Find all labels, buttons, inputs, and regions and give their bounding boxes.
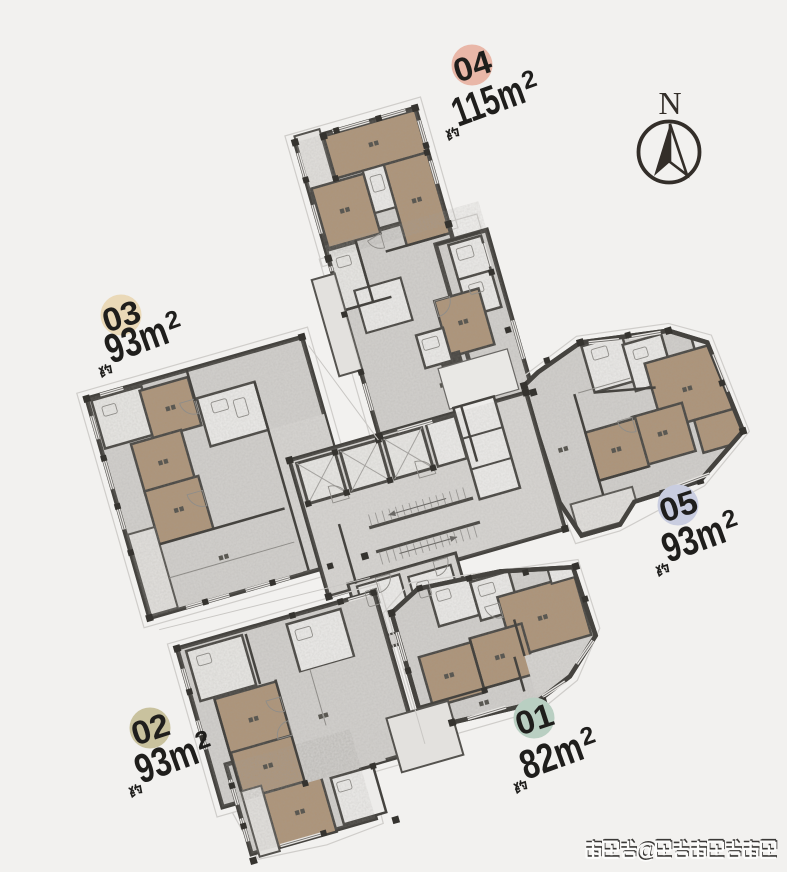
svg-text:@: @ [636, 839, 657, 864]
svg-text:N: N [658, 85, 681, 121]
